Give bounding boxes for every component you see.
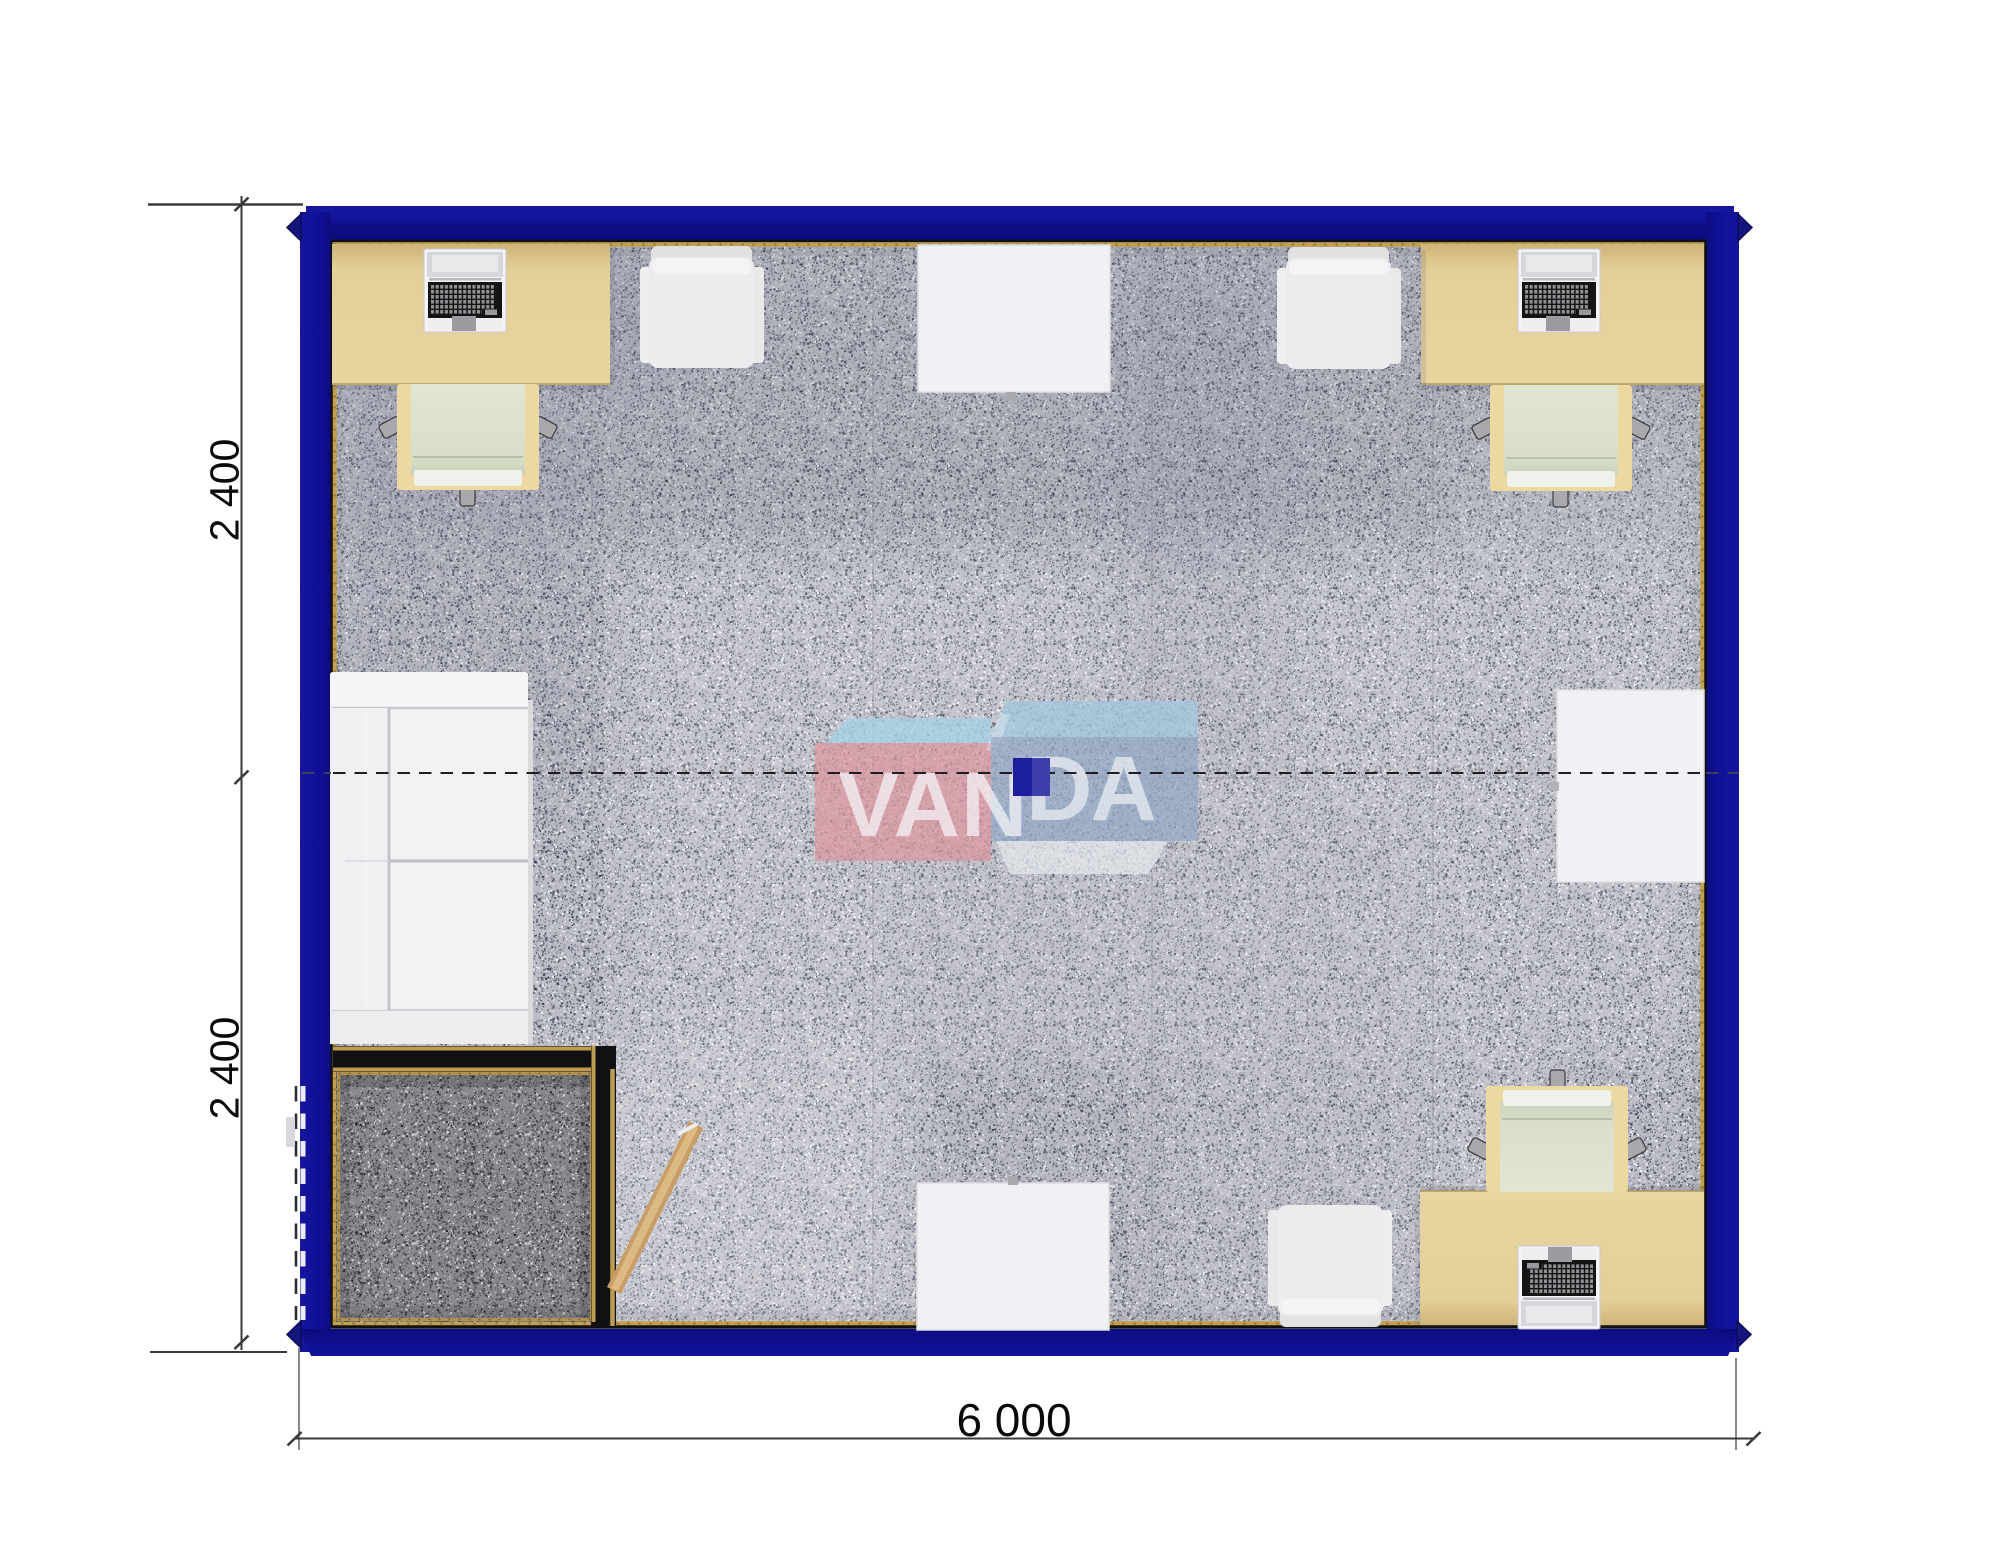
svg-text:6 000: 6 000 [956,1394,1071,1446]
svg-text:2 400: 2 400 [202,439,248,542]
svg-text:2 400: 2 400 [202,1017,248,1120]
svg-text:VAN: VAN [838,754,1028,856]
